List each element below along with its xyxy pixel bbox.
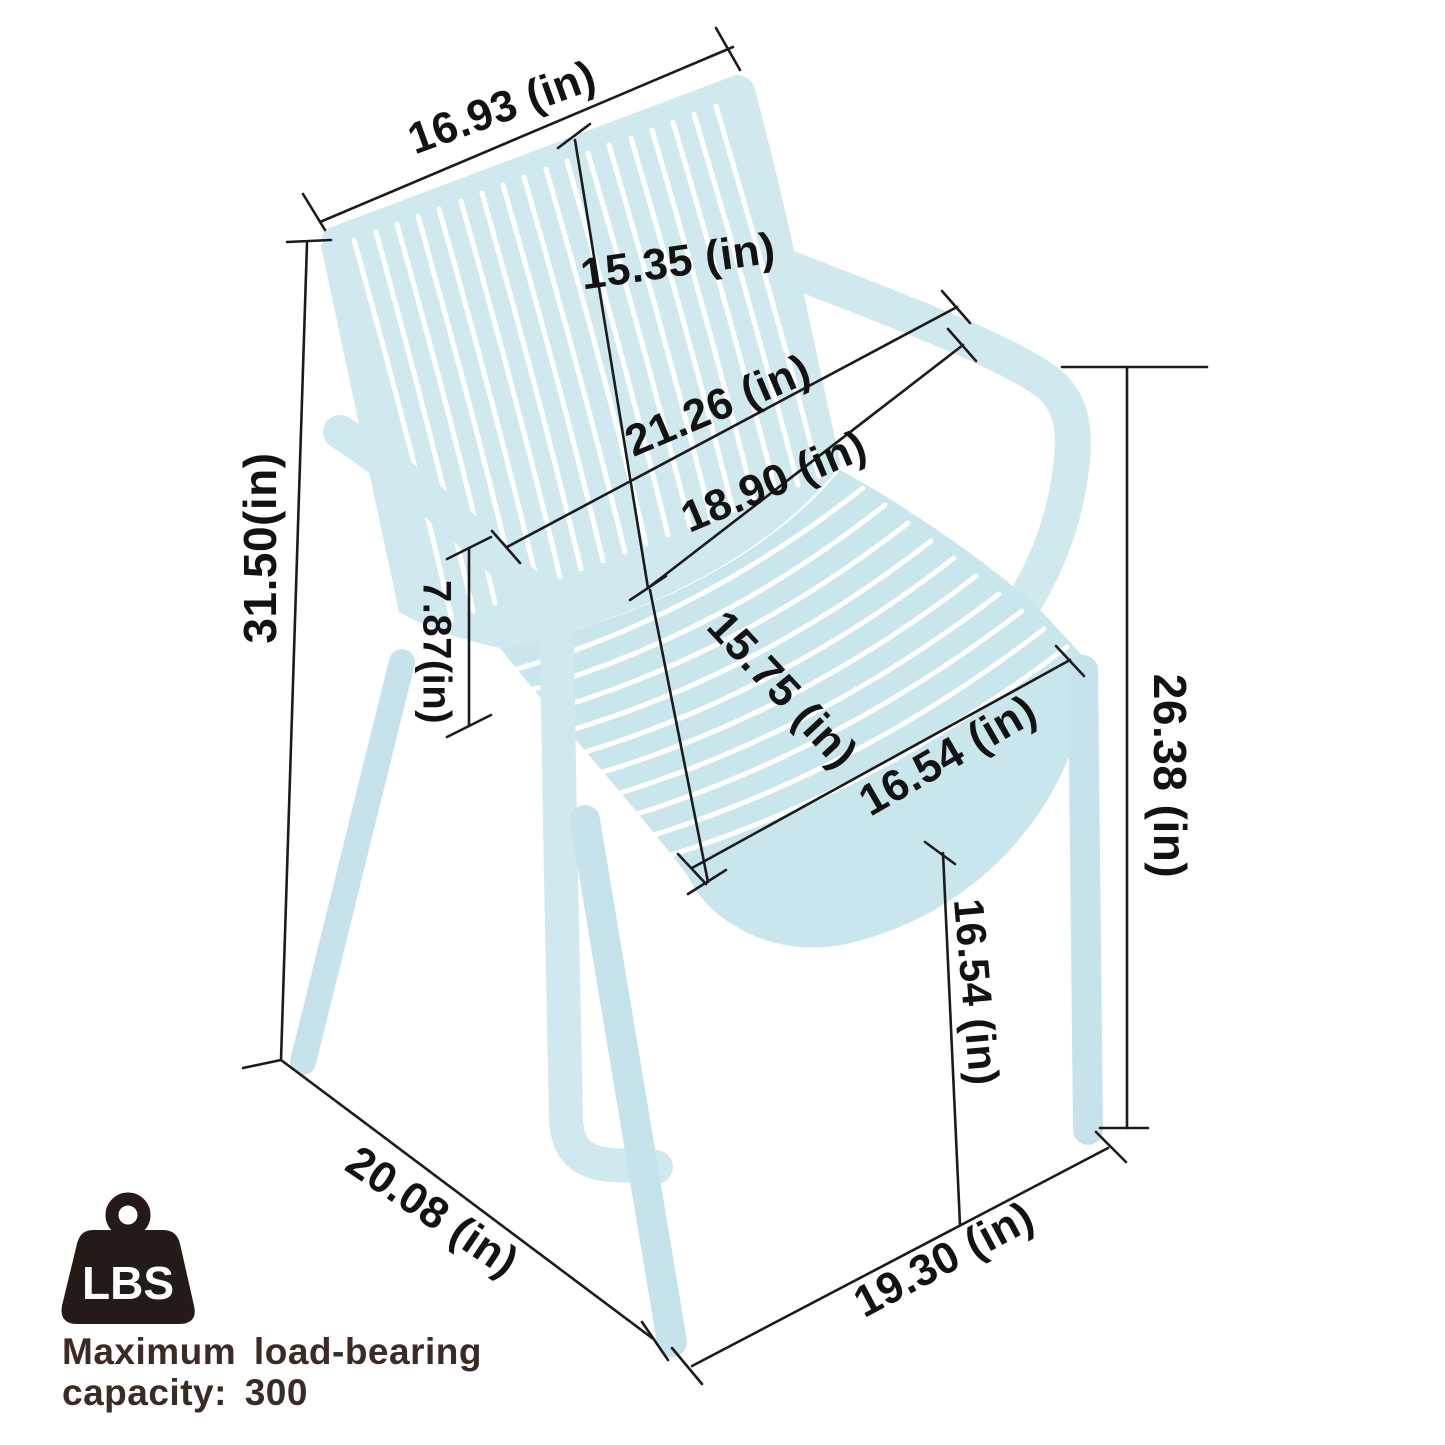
weight-icon-label: LBS xyxy=(82,1257,174,1309)
dim-line-overall-height xyxy=(243,240,331,1068)
dim-overall-height: 31.50(in) xyxy=(233,452,287,643)
dim-armrest-floor-height: 26.38 (in) xyxy=(1143,674,1197,878)
product-dimension-diagram: LBS 16.93 (in) 15.35 (in) 21.26 (in) 18.… xyxy=(0,0,1445,1445)
chair-front-left-leg xyxy=(585,820,672,1342)
chair-diagram-svg: LBS xyxy=(0,0,1445,1445)
weight-icon: LBS xyxy=(64,1199,193,1322)
chair-front-right-leg xyxy=(1083,670,1088,1130)
load-capacity-caption-line2: capacity: 300 xyxy=(62,1373,482,1414)
load-capacity-caption: Maximum load-bearing capacity: 300 xyxy=(62,1332,482,1413)
chair-back-left-leg xyxy=(303,662,402,1062)
load-capacity-caption-line1: Maximum load-bearing xyxy=(62,1332,482,1373)
dim-armrest-height: 7.87(in) xyxy=(414,580,459,724)
